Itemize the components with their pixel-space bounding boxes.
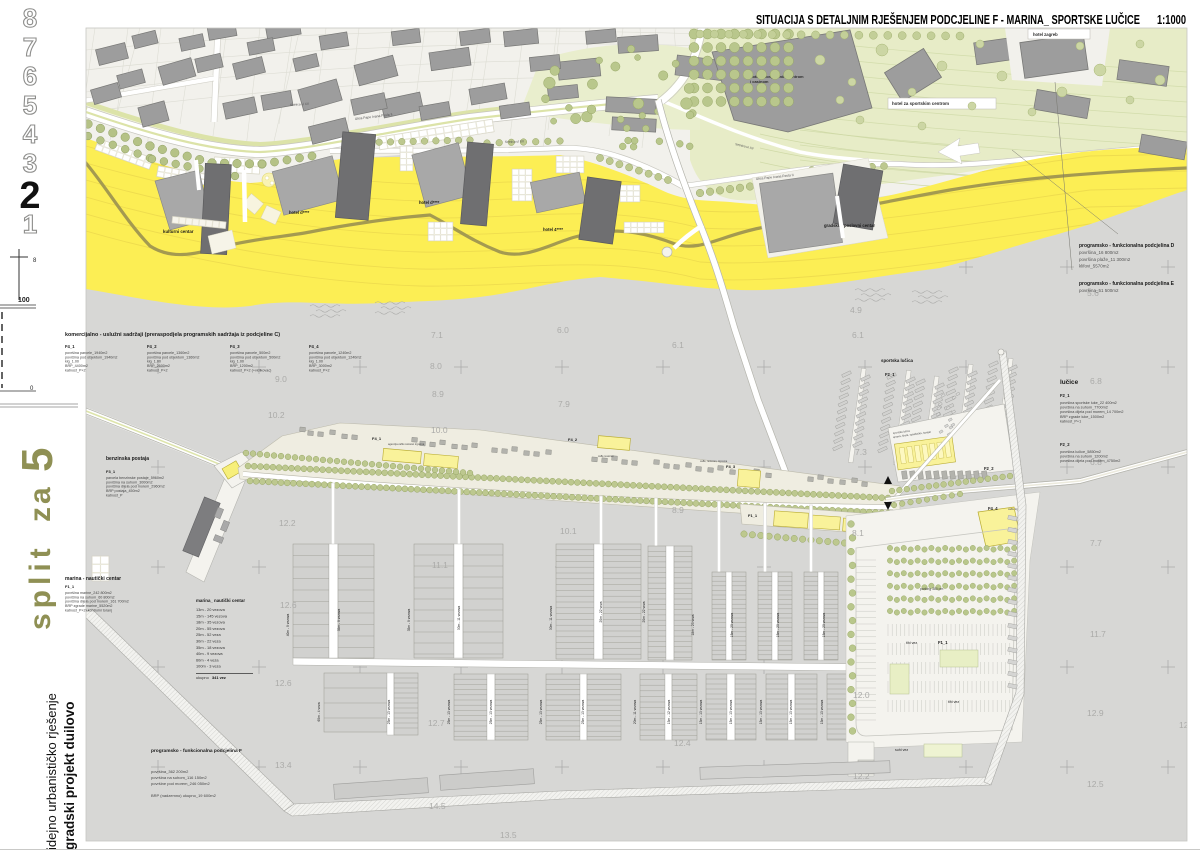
svg-text:20m - 22 veza: 20m - 22 veza: [642, 601, 646, 622]
svg-text:idejno urbanističko rješenje: idejno urbanističko rješenje: [44, 693, 59, 850]
svg-text:11.1: 11.1: [432, 560, 448, 570]
svg-text:parking 380 pm: parking 380 pm: [920, 587, 944, 591]
svg-text:površina dijela pod morem_14 7: površina dijela pod morem_14 700m2: [1060, 410, 1124, 414]
svg-text:15m - 20 vezova: 15m - 20 vezova: [730, 613, 734, 638]
svg-text:marina - nautički centar: marina - nautički centar: [65, 576, 121, 582]
svg-text:30m - 11 vezova: 30m - 11 vezova: [457, 606, 461, 630]
svg-text:6.1: 6.1: [852, 330, 864, 340]
svg-text:15m - 13 vezova: 15m - 13 vezova: [789, 700, 793, 725]
svg-text:površina_51 500m2: površina_51 500m2: [1079, 288, 1119, 293]
svg-text:katnost_P+2+kontrolni toranj: katnost_P+2+kontrolni toranj: [65, 608, 112, 612]
svg-text:caffe restoran: caffe restoran: [598, 454, 614, 458]
svg-text:7: 7: [23, 32, 37, 62]
svg-text:F3_1: F3_1: [106, 469, 116, 474]
svg-text:30m - 22 veza: 30m - 22 veza: [196, 639, 221, 644]
svg-text:7.1: 7.1: [431, 330, 443, 340]
svg-text:katnost_P: katnost_P: [106, 493, 123, 497]
svg-text:25m - 13 vezova: 25m - 13 vezova: [447, 700, 451, 725]
svg-text:katnost_P+2: katnost_P+2: [309, 368, 330, 372]
svg-text:18m - 23 veza: 18m - 23 veza: [691, 614, 695, 635]
svg-text:15m - 13 vezova: 15m - 13 vezova: [699, 700, 703, 725]
svg-text:12.2: 12.2: [279, 518, 296, 528]
svg-text:površine pod morem_246 050m2: površine pod morem_246 050m2: [151, 781, 210, 786]
svg-text:4.9: 4.9: [850, 305, 862, 315]
svg-text:12.0: 12.0: [853, 690, 870, 700]
svg-text:F4_2: F4_2: [147, 344, 157, 349]
svg-text:12.7: 12.7: [428, 718, 445, 728]
svg-text:7.9: 7.9: [558, 399, 570, 409]
svg-text:površina parcele_1940m2: površina parcele_1940m2: [65, 351, 107, 355]
svg-text:BRP zgrade luke_1500m2: BRP zgrade luke_1500m2: [1060, 415, 1104, 419]
svg-text:341 vez: 341 vez: [212, 675, 226, 680]
svg-text:parcela benzinske postaje_5960: parcela benzinske postaje_5960m2: [106, 476, 164, 480]
svg-text:hotel d****: hotel d****: [419, 200, 440, 205]
svg-text:20m - 55 vezova: 20m - 55 vezova: [196, 626, 226, 631]
svg-text:gradsko - poslovni centar: gradsko - poslovni centar: [824, 223, 875, 228]
svg-text:površina dijela pod morem_161: površina dijela pod morem_161 700m2: [65, 600, 129, 604]
svg-text:35m - 9 vezova: 35m - 9 vezova: [337, 609, 341, 632]
svg-text:površina na suhom_1200m2: površina na suhom_1200m2: [1060, 455, 1108, 459]
svg-text:F4_3: F4_3: [726, 464, 736, 469]
svg-text:30m - 11 vezova: 30m - 11 vezova: [549, 606, 553, 630]
svg-text:hotel zagreb: hotel zagreb: [1033, 32, 1058, 37]
svg-text:20m - 11 vezova: 20m - 11 vezova: [633, 700, 637, 724]
svg-text:5: 5: [23, 90, 37, 120]
svg-text:površina parcele_1240m2: površina parcele_1240m2: [309, 351, 351, 355]
svg-text:kig_1.00: kig_1.00: [147, 360, 161, 364]
svg-text:površina_362 200m2: površina_362 200m2: [151, 769, 189, 774]
svg-text:split: split: [24, 543, 57, 630]
svg-text:površina sportske luke_22 400m: površina sportske luke_22 400m2: [1060, 401, 1117, 405]
svg-text:površina marine_242 800m2: površina marine_242 800m2: [65, 591, 112, 595]
svg-text:25m - 52 veza: 25m - 52 veza: [196, 632, 221, 637]
svg-text:15m - 13 vezova: 15m - 13 vezova: [729, 700, 733, 725]
svg-text:1: 1: [23, 209, 37, 239]
svg-text:F2_2: F2_2: [984, 466, 994, 471]
svg-text:6.0: 6.0: [557, 325, 569, 335]
svg-text:katnost_P+2: katnost_P+2: [65, 368, 86, 372]
svg-text:površina plaže_11 300m2: površina plaže_11 300m2: [1079, 257, 1131, 262]
svg-text:13m - 20 vezova: 13m - 20 vezova: [196, 607, 226, 612]
svg-text:komercijalno - uslužni sadržaj: komercijalno - uslužni sadržaji (prerasp…: [65, 332, 280, 338]
svg-text:6.1: 6.1: [672, 340, 684, 350]
svg-text:6.8: 6.8: [1090, 376, 1102, 386]
svg-text:25m - 13 vezova: 25m - 13 vezova: [387, 700, 391, 725]
svg-text:suhi vez: suhi vez: [895, 748, 908, 752]
svg-text:18m - 35 vezova: 18m - 35 vezova: [196, 620, 226, 625]
svg-text:F4_1: F4_1: [65, 344, 75, 349]
svg-text:caffe, restoran, trgovina: caffe, restoran, trgovina: [700, 459, 728, 463]
svg-text:hotel d****: hotel d****: [289, 210, 310, 215]
svg-text:7.3: 7.3: [855, 447, 867, 457]
svg-text:F4_2: F4_2: [568, 437, 578, 442]
svg-text:F4_4: F4_4: [309, 344, 319, 349]
svg-text:F4_4: F4_4: [988, 506, 998, 511]
svg-text:kig_1.00: kig_1.00: [65, 360, 79, 364]
svg-text:tihi vez: tihi vez: [906, 641, 917, 645]
svg-text:15m - 20 vezova: 15m - 20 vezova: [822, 613, 826, 638]
svg-text:35m - 18 vezova: 35m - 18 vezova: [196, 645, 226, 650]
svg-text:kulturni centar: kulturni centar: [163, 229, 194, 234]
svg-text:4: 4: [23, 119, 38, 149]
svg-text:programsko - funkcionalna podc: programsko - funkcionalna podcjelina E: [1079, 281, 1175, 287]
svg-text:40m - 9 vezova: 40m - 9 vezova: [196, 651, 223, 656]
svg-text:15m - 13 vezova: 15m - 13 vezova: [759, 700, 763, 725]
svg-text:9.0: 9.0: [275, 374, 287, 384]
svg-text:12.4: 12.4: [674, 738, 691, 748]
svg-text:60m - 4 veza: 60m - 4 veza: [317, 702, 321, 721]
svg-text:kig_1.00: kig_1.00: [309, 360, 323, 364]
svg-text:1:1000: 1:1000: [1157, 12, 1186, 27]
svg-text:8.0: 8.0: [430, 361, 442, 371]
svg-text:katnost_P+2 (+vidikovac): katnost_P+2 (+vidikovac): [230, 368, 271, 372]
svg-text:ukupno: ukupno: [196, 675, 209, 680]
svg-text:površina parcele_1360m2: površina parcele_1360m2: [147, 351, 189, 355]
svg-text:katnost_P+2: katnost_P+2: [147, 368, 168, 372]
svg-text:F2_2: F2_2: [1060, 442, 1070, 447]
svg-text:SITUACIJA S DETALJNIM RJEŠENJE: SITUACIJA S DETALJNIM RJEŠENJEM PODCJELI…: [756, 12, 1140, 27]
svg-text:14.5: 14.5: [429, 801, 446, 811]
svg-text:60m - 4 veza: 60m - 4 veza: [196, 657, 219, 662]
svg-text:13.4: 13.4: [275, 760, 292, 770]
svg-text:10.0: 10.0: [431, 425, 448, 435]
svg-text:programsko - funkcionalna podc: programsko - funkcionalna podcjelina F: [151, 748, 242, 754]
svg-text:površina parcele_500m2: površina parcele_500m2: [230, 351, 270, 355]
svg-text:5: 5: [13, 448, 62, 472]
svg-text:13.5: 13.5: [500, 830, 517, 840]
svg-text:8.9: 8.9: [672, 505, 684, 515]
svg-text:10.2: 10.2: [268, 410, 285, 420]
svg-text:površina_16 800m2: površina_16 800m2: [1079, 250, 1119, 255]
svg-text:agencija caffe restoran trgovi: agencija caffe restoran trgovina: [388, 442, 425, 446]
svg-text:100: 100: [18, 297, 30, 304]
svg-text:35m - 9 vezova: 35m - 9 vezova: [407, 609, 411, 632]
svg-text:20m - 22 veza: 20m - 22 veza: [599, 601, 603, 622]
svg-text:7.7: 7.7: [1090, 538, 1102, 548]
svg-text:25m - 13 vezova: 25m - 13 vezova: [539, 700, 543, 725]
svg-text:F2_1: F2_1: [885, 372, 895, 377]
svg-text:površina na suhom_116 150m2: površina na suhom_116 150m2: [151, 775, 208, 780]
svg-text:15m - 20 vezova: 15m - 20 vezova: [776, 613, 780, 638]
svg-text:hotel za sportskim centrom: hotel za sportskim centrom: [892, 101, 949, 106]
svg-text:sportska lučica: sportska lučica: [881, 358, 914, 363]
svg-text:površina na suhom_7700m2: površina na suhom_7700m2: [1060, 406, 1108, 410]
svg-text:25m - 13 vezova: 25m - 13 vezova: [581, 700, 585, 725]
svg-text:F4_1: F4_1: [372, 436, 382, 441]
svg-text:15m - 12 vezova: 15m - 12 vezova: [667, 700, 671, 725]
svg-text:15m - 13 vezova: 15m - 13 vezova: [820, 700, 824, 725]
svg-text:3: 3: [23, 148, 37, 178]
svg-text:12.5: 12.5: [1087, 779, 1104, 789]
svg-text:11.7: 11.7: [1090, 629, 1106, 639]
svg-text:marina_ nautički centar: marina_ nautički centar: [196, 598, 245, 603]
svg-text:hotel 4****: hotel 4****: [543, 227, 563, 232]
svg-text:10.1: 10.1: [560, 526, 577, 536]
svg-text:40m - 9 vezova: 40m - 9 vezova: [286, 614, 290, 637]
svg-text:F1_1: F1_1: [748, 513, 758, 518]
svg-text:klifovi_5570m2: klifovi_5570m2: [1079, 264, 1110, 269]
svg-text:površina dijela pod morem_2960: površina dijela pod morem_2960m2: [106, 485, 165, 489]
svg-text:12.2: 12.2: [853, 771, 870, 781]
svg-text:F1_1: F1_1: [938, 640, 948, 645]
svg-text:8.1: 8.1: [852, 528, 864, 538]
svg-text:tihi vez: tihi vez: [948, 700, 959, 704]
svg-text:površina dijela pod morem_4750: površina dijela pod morem_4750m2: [1060, 459, 1120, 463]
svg-text:površina lučice_5850m2: površina lučice_5850m2: [1060, 450, 1101, 454]
svg-text:F4_3: F4_3: [230, 344, 240, 349]
svg-text:lučice: lučice: [1060, 379, 1079, 386]
svg-text:12.6: 12.6: [280, 600, 297, 610]
svg-text:programsko - funkcionalna podc: programsko - funkcionalna podcjelina D: [1079, 243, 1175, 249]
svg-text:katnost_P+1: katnost_P+1: [1060, 419, 1081, 423]
svg-text:8: 8: [23, 3, 37, 33]
svg-text:15m - 145 vezova: 15m - 145 vezova: [196, 613, 228, 618]
svg-text:F1_1: F1_1: [65, 584, 75, 589]
svg-text:F2_1: F2_1: [1060, 393, 1070, 398]
svg-text:12.9: 12.9: [1087, 708, 1104, 718]
svg-text:za: za: [24, 484, 57, 522]
svg-text:6: 6: [23, 61, 37, 91]
svg-text:12.6: 12.6: [275, 678, 292, 688]
svg-text:8.9: 8.9: [432, 389, 444, 399]
svg-text:100m - 3 veza: 100m - 3 veza: [196, 664, 221, 669]
svg-text:gradski projekt duilovo: gradski projekt duilovo: [62, 701, 77, 850]
svg-text:Setnica ul XII: Setnica ul XII: [505, 139, 524, 144]
svg-text:25m - 13 vezova: 25m - 13 vezova: [489, 700, 493, 725]
svg-text:benzinska postaja: benzinska postaja: [106, 456, 149, 462]
svg-text:kig_1.00: kig_1.00: [230, 360, 244, 364]
svg-text:BRP (nadzemno) ukupno_19 600m2: BRP (nadzemno) ukupno_19 600m2: [151, 793, 217, 798]
